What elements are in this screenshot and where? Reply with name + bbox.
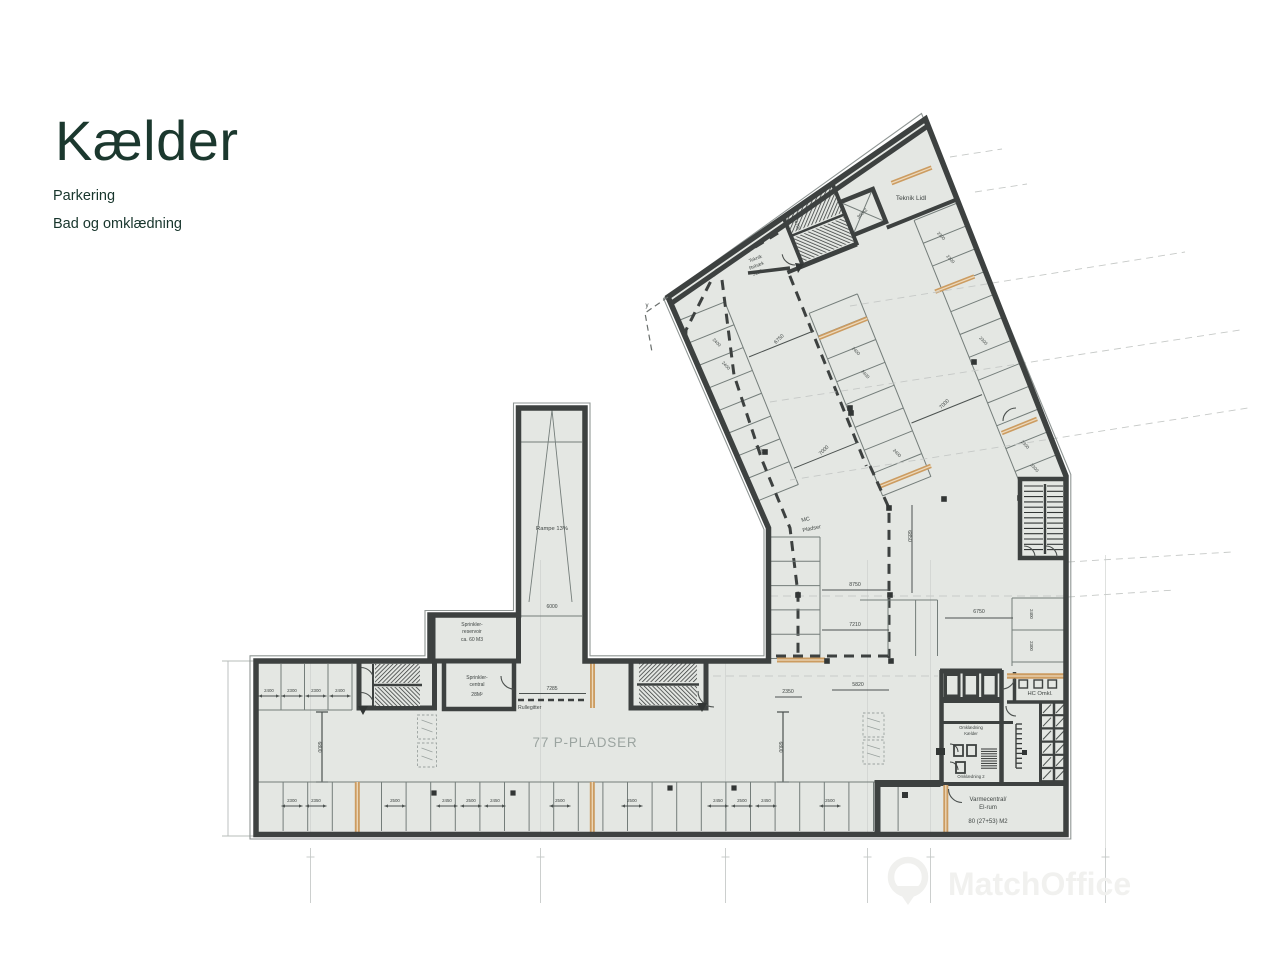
svg-text:6800: 6800: [777, 741, 783, 752]
svg-text:2300: 2300: [1029, 641, 1034, 651]
svg-text:Teknik Lidl: Teknik Lidl: [896, 195, 927, 202]
svg-text:y: y: [646, 303, 649, 309]
svg-text:2400: 2400: [264, 688, 274, 693]
svg-text:Kælder: Kælder: [55, 109, 239, 172]
svg-text:Kælder: Kælder: [964, 731, 978, 736]
svg-text:Rullegitter: Rullegitter: [518, 705, 542, 711]
svg-text:2350: 2350: [311, 798, 321, 803]
svg-text:Parkering: Parkering: [53, 188, 115, 204]
svg-text:2300: 2300: [311, 688, 321, 693]
svg-text:28M²: 28M²: [471, 692, 483, 698]
svg-text:2450: 2450: [490, 798, 500, 803]
svg-text:2450: 2450: [713, 798, 723, 803]
svg-text:2500: 2500: [627, 798, 637, 803]
svg-text:HC Omkl.: HC Omkl.: [1027, 691, 1053, 697]
svg-text:8750: 8750: [849, 582, 861, 588]
svg-text:2450: 2450: [442, 798, 452, 803]
svg-text:MatchOffice: MatchOffice: [948, 866, 1131, 902]
svg-text:6800: 6800: [316, 741, 322, 752]
svg-text:7210: 7210: [849, 622, 861, 628]
svg-text:Sprinkler-: Sprinkler-: [466, 675, 488, 681]
svg-text:2450: 2450: [761, 798, 771, 803]
svg-text:El-rum: El-rum: [979, 805, 997, 811]
svg-text:5820: 5820: [852, 682, 864, 688]
svg-text:Bad og omklædning: Bad og omklædning: [53, 216, 182, 232]
svg-text:2500: 2500: [825, 798, 835, 803]
svg-text:2400: 2400: [1029, 609, 1034, 619]
svg-text:central: central: [469, 682, 484, 688]
svg-text:6000: 6000: [546, 604, 557, 610]
svg-text:Omklædning 2: Omklædning 2: [957, 774, 985, 779]
svg-text:2500: 2500: [737, 798, 747, 803]
svg-text:Rampe 13%: Rampe 13%: [536, 526, 568, 532]
svg-text:80 (27+53) M2: 80 (27+53) M2: [968, 819, 1008, 825]
svg-text:6750: 6750: [973, 609, 985, 615]
svg-text:2500: 2500: [466, 798, 476, 803]
svg-text:Sprinkler-: Sprinkler-: [461, 622, 483, 628]
svg-text:6850: 6850: [906, 530, 912, 542]
svg-text:2500: 2500: [390, 798, 400, 803]
svg-text:Omklædning: Omklædning: [959, 725, 983, 730]
svg-text:77 P-PLADSER: 77 P-PLADSER: [533, 735, 638, 750]
svg-text:2300: 2300: [287, 688, 297, 693]
svg-text:Varmecentral/: Varmecentral/: [970, 797, 1007, 803]
svg-text:2300: 2300: [287, 798, 297, 803]
svg-text:ca. 60 M3: ca. 60 M3: [461, 637, 483, 643]
svg-text:reservoir: reservoir: [462, 629, 482, 635]
svg-text:2500: 2500: [555, 798, 565, 803]
svg-text:2350: 2350: [782, 689, 794, 695]
svg-text:7285: 7285: [546, 686, 557, 692]
svg-text:2400: 2400: [335, 688, 345, 693]
